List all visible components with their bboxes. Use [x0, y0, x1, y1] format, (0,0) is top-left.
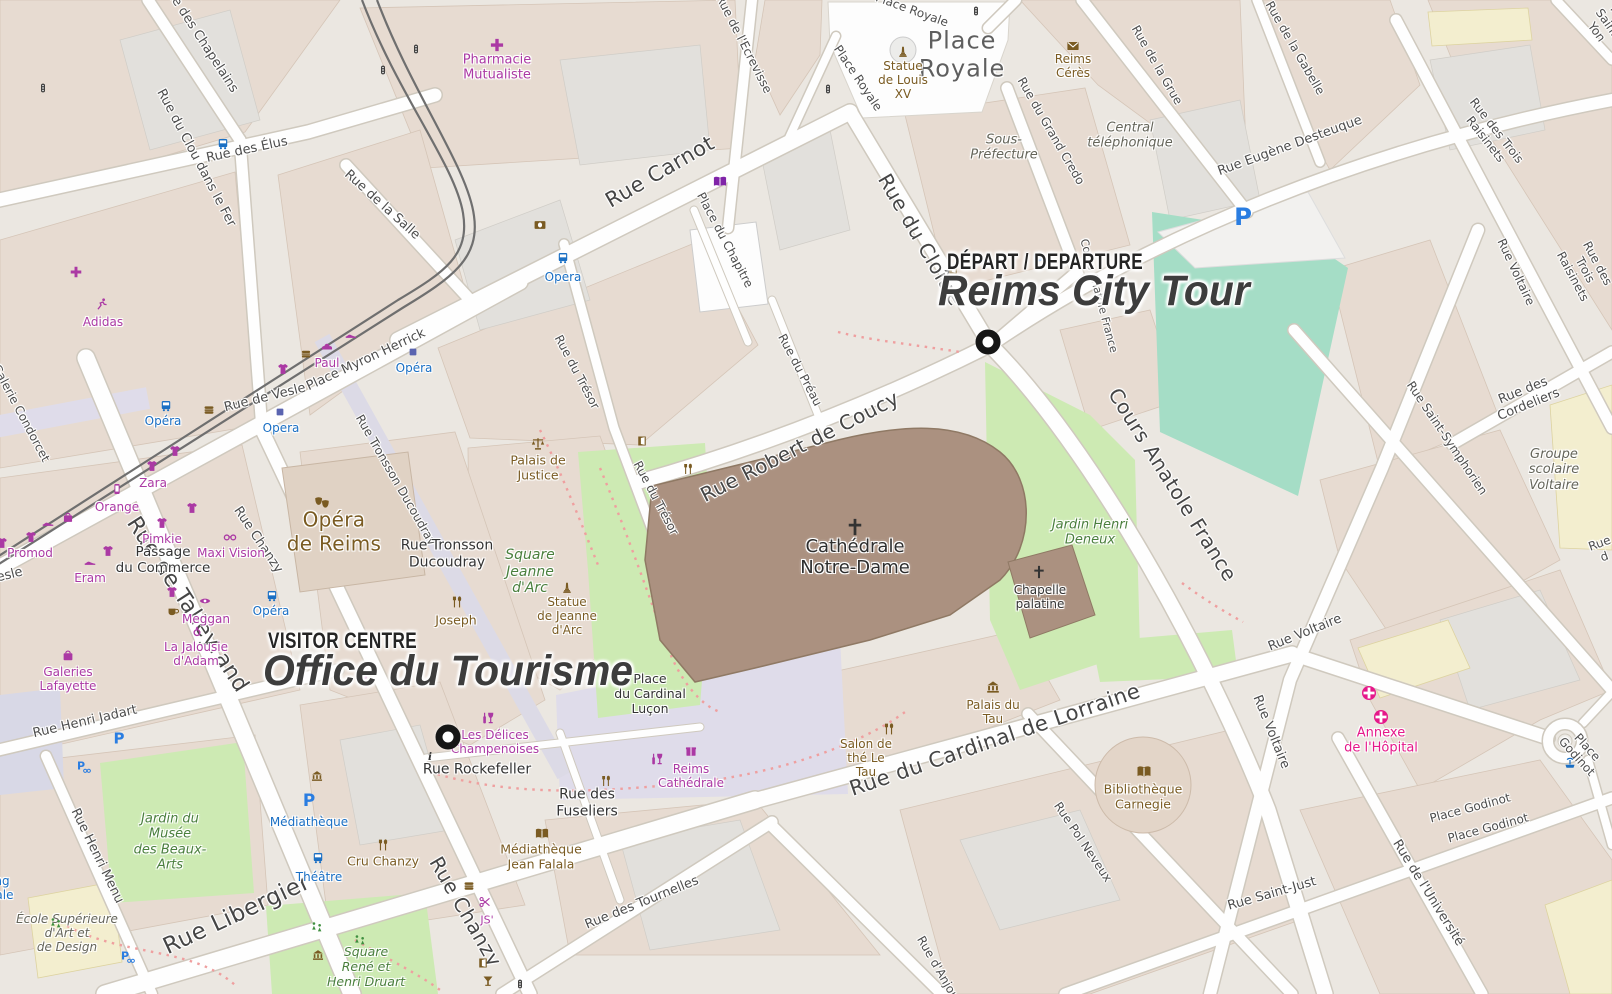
label-eram: Eram: [74, 571, 106, 585]
label-théâtre: Théâtre: [296, 870, 342, 884]
parking-icon: P: [111, 730, 127, 746]
label-annexe-de-lhôpital: Annexe de l'Hôpital: [1344, 726, 1418, 757]
label-rue-chanzy: Rue Chanzy: [424, 853, 506, 972]
book-icon: [1136, 764, 1152, 780]
label-rue-tronsson-ducoudray: Rue Tronsson Ducoudray: [401, 537, 493, 570]
museum-icon: [986, 680, 1001, 695]
label-médiathèque-jean-falala: Médiathèque Jean Falala: [500, 842, 582, 872]
traffic-light-icon: [971, 6, 982, 17]
cutlery-icon: [682, 463, 695, 476]
label-la-jalousie-dadam: La Jalousie d'Adam: [164, 640, 228, 668]
label-statue-de-jeanne-darc: Statue de Jeanne d'Arc: [537, 595, 597, 637]
label-place-du-chapitre: Place du Chapitre: [694, 190, 756, 290]
label-rue-du-grand-credo: Rue du Grand Credo: [1014, 75, 1087, 187]
hospital-cross-icon: [1361, 685, 1377, 701]
label-central-téléphonique: Central téléphonique: [1087, 121, 1173, 152]
label-opera: Opera: [263, 421, 300, 435]
label-place-royale: Place Royale: [831, 43, 885, 114]
svg-text:P: P: [114, 730, 125, 746]
label-rue-saint-yon: Rue Saint-Yon: [1581, 0, 1612, 50]
church-cross-icon: [1032, 565, 1047, 580]
scales-icon: [531, 437, 546, 452]
burger-icon: [300, 348, 312, 360]
phone-icon: [111, 483, 124, 496]
label-rue-de-la-gabelle: Rue de la Gabelle: [1262, 0, 1327, 97]
playground-icon: [310, 920, 324, 934]
cutlery-icon: [376, 838, 390, 852]
label-cru-chanzy: Cru Chanzy: [347, 855, 419, 870]
label-rue-pol-neveux: Rue Pol Neveux: [1051, 799, 1115, 884]
labels-layer: Rue de TalleyrandRue des ChapelainsRue d…: [0, 0, 1612, 994]
label-rue-robert-de-coucy: Rue Robert de Coucy: [697, 387, 903, 508]
label-rue-des-cordeliers: Rue des Cordeliers: [1480, 368, 1571, 429]
info-icon: i: [424, 750, 437, 763]
label-rue-voltaire: Rue Voltaire: [1249, 693, 1292, 771]
shirt-icon: [186, 502, 199, 515]
label-cathédrale-notre-dame: Cathédrale Notre-Dame: [800, 536, 910, 578]
label-jardin-du-musée-des-beaux--arts: Jardin du Musée des Beaux- Arts: [134, 811, 207, 872]
departure-title: Reims City Tour: [938, 267, 1250, 316]
label-rue-eugène-desteuque: Rue Eugène Desteuque: [1216, 113, 1365, 180]
traffic-light-icon: [823, 84, 834, 95]
departure-marker[interactable]: [976, 330, 1001, 355]
monument-icon: [897, 46, 910, 59]
visitor-centre-title: Office du Tourisme: [263, 647, 633, 696]
label-zara: Zara: [139, 476, 167, 490]
shirt-icon: [156, 517, 169, 530]
label-opera: Opera: [545, 270, 582, 284]
label-rue-des-trois-raisinets: Rue des Trois Raisinets: [1554, 236, 1612, 304]
cutlery-icon: [882, 722, 896, 736]
label-galerie-condorcet: Galerie Condorcet: [0, 362, 53, 464]
label-rue-saint-symphorien: Rue Saint-Symphorien: [1404, 379, 1491, 498]
label-js: JS': [480, 915, 493, 928]
label-rue-rockefeller: Rue Rockefeller: [423, 762, 531, 779]
shirt-icon: [25, 531, 38, 544]
label-rue-des-fuseliers: Rue des Fuseliers: [556, 786, 618, 819]
bus-icon: [266, 590, 279, 603]
label-square-jeanne-darc: Square Jeanne d'Arc: [505, 547, 555, 597]
label-pimkie: Pimkie: [142, 532, 182, 546]
label-orange: Orange: [95, 500, 139, 514]
label-rue-de-lecrevisse: Rue de l'Ecrevisse: [713, 0, 775, 96]
svg-text:P: P: [1234, 203, 1252, 229]
visitor-centre-marker[interactable]: [436, 725, 461, 750]
museum-icon: [312, 949, 325, 962]
traffic-light-icon: [411, 44, 422, 55]
label-rue-libergier: Rue Libergier: [159, 869, 315, 961]
label-pharmacie-mutualiste: Pharmacie Mutualiste: [463, 53, 532, 84]
label-rue-des-tournelles: Rue des Tournelles: [583, 873, 701, 933]
door-icon: [636, 435, 648, 447]
coffee-icon: [167, 605, 180, 618]
label-meggan: Meggan: [182, 612, 230, 626]
run-icon: [96, 298, 109, 311]
wine-icon: [650, 752, 664, 766]
parking-icon: P: [300, 791, 318, 809]
label-rue-de-la-salle: Rue de la Salle: [341, 167, 423, 243]
fountain-icon: [1563, 756, 1577, 770]
bus-icon: [557, 252, 570, 265]
burger-icon: [203, 404, 216, 417]
label-chapelle-palatine: Chapelle palatine: [1014, 583, 1066, 611]
shoe-icon: [84, 556, 97, 569]
museum-icon: [311, 770, 324, 783]
label-médiathèque: Médiathèque: [270, 815, 348, 829]
book-icon: [535, 827, 550, 842]
label-rue-voltaire: Rue Voltaire: [1494, 236, 1537, 307]
label-rue-de-vesle: Rue de Vesle: [0, 564, 24, 599]
label-groupe-scolaire-voltaire: Groupe scolaire Voltaire: [1529, 447, 1579, 493]
label-rue-du-trésor: Rue du Trésor: [552, 333, 603, 412]
envelope-icon: [1066, 39, 1080, 53]
book-icon: [713, 175, 728, 190]
bakery-icon: [321, 341, 334, 354]
label-maxi-vision: Maxi Vision: [197, 546, 265, 560]
label-place-godinot: Place Godinot: [1556, 725, 1609, 779]
label-rue-du-préau: Rue du Préau: [775, 331, 825, 408]
shirt-icon: [169, 445, 182, 458]
ring-icon: [191, 625, 204, 638]
label-les-délices-champenoises: Les Délices Champenoises: [451, 728, 539, 756]
label-rue-henri-menu: Rue Henri Menu: [67, 806, 126, 906]
playground-icon: [49, 916, 63, 930]
label-place-royale: Place Royale: [874, 0, 950, 30]
label-rue-d: Rue d: [1586, 533, 1612, 567]
shirt-icon: [277, 363, 290, 376]
label-rue-de-la-grue: Rue de la Grue: [1129, 23, 1186, 107]
wine-icon: [481, 711, 495, 725]
label-statue-de-louis-xv: Statue de Louis XV: [878, 59, 928, 101]
label-opéra: Opéra: [396, 361, 433, 375]
label-rue-des-chapelains: Rue des Chapelains: [159, 0, 241, 96]
label-place-royale: Place Royale: [919, 27, 1006, 84]
label-rue-de-luniversité: Rue de l'Université: [1389, 837, 1467, 949]
hospital-cross-icon: [1373, 709, 1389, 725]
label-rue-des-trois-raisinets: Rue des Trois Raisinets: [1443, 79, 1540, 192]
shoe-icon: [345, 329, 358, 342]
burger-icon: [463, 880, 476, 893]
scissors-icon: [479, 896, 492, 909]
cocktail-icon: [482, 975, 495, 988]
label-palais-de-justice: Palais de Justice: [510, 453, 565, 483]
shirt-icon: [146, 460, 159, 473]
monument-icon: [561, 582, 574, 595]
label-jardin-henri-deneux: Jardin Henri Deneux: [1052, 518, 1128, 549]
label-opéra: Opéra: [145, 414, 182, 428]
playground-icon: [353, 933, 367, 947]
label-square-rené-et-henri-druart: Square René et Henri Druart: [327, 945, 405, 989]
label-paul: Paul: [315, 356, 340, 370]
church-cross-icon: [845, 517, 865, 537]
currency-icon: [533, 218, 547, 232]
label-rue-du-trésor: Rue du Trésor: [631, 459, 682, 538]
bag-icon: [62, 511, 75, 524]
traffic-light-icon: [515, 979, 526, 990]
svg-text:P: P: [303, 791, 315, 809]
label-promod: Promod: [7, 546, 53, 560]
tram-square-icon: [409, 348, 418, 357]
map-canvas[interactable]: Rue de TalleyrandRue des ChapelainsRue d…: [0, 0, 1612, 994]
bus-icon: [217, 138, 230, 151]
label-palais-du-tau: Palais du Tau: [966, 698, 1019, 726]
traffic-light-icon: [378, 65, 389, 76]
cutlery-icon: [450, 595, 464, 609]
label-cours-anatole-france: Cours Anatole France: [1103, 384, 1241, 586]
label-rue-saint-just: Rue Saint-Just: [1226, 874, 1318, 914]
shirt-icon: [0, 537, 9, 550]
pharmacy-cross-icon: [70, 266, 83, 279]
label-adidas: Adidas: [83, 315, 123, 329]
label-galeries-lafayette: Galeries Lafayette: [40, 665, 97, 693]
parking-bike-icon: P: [119, 948, 135, 964]
parking-icon: P: [1230, 203, 1256, 229]
label-reims-cérès: Reims Cérès: [1055, 52, 1091, 80]
svg-text:i: i: [428, 751, 432, 762]
pharmacy-cross-icon: [490, 38, 505, 53]
shirt-icon: [102, 545, 115, 558]
label-reims-cathédrale: Reims Cathédrale: [658, 762, 724, 790]
label-salon-de-thé-le-tau: Salon de thé Le Tau: [840, 737, 892, 779]
label-opéra-de-reims: Opéra de Reims: [287, 508, 382, 555]
label-ng-rale: ng rale: [0, 874, 14, 902]
eye-icon: [199, 595, 212, 608]
label-sous--préfecture: Sous- Préfecture: [970, 133, 1038, 164]
label-bibliothèque-carnegie: Bibliothèque Carnegie: [1104, 782, 1183, 812]
label-rue-voltaire: Rue Voltaire: [1266, 611, 1344, 654]
masks-icon: [313, 493, 331, 511]
parking-bike-icon: P: [75, 758, 91, 774]
label-école-supérieure-dart-et-de-design: École Supérieure d'Art et de Design: [16, 912, 118, 954]
label-rue-de-vesle: Rue de Vesle: [223, 380, 308, 415]
cutlery-icon: [600, 775, 613, 788]
label-opéra: Opéra: [253, 604, 290, 618]
bus-icon: [312, 852, 325, 865]
shirt-icon: [166, 586, 179, 599]
tram-square-icon: [276, 408, 285, 417]
gift-icon: [685, 745, 698, 758]
door-icon: [477, 957, 489, 969]
bag-icon: [61, 648, 75, 662]
label-rue-chanzy: Rue Chanzy: [230, 504, 286, 576]
label-rue-danjou: Rue d'Anjou: [914, 933, 962, 994]
glasses-icon: [223, 530, 237, 544]
shoe-icon: [42, 517, 55, 530]
traffic-light-icon: [38, 83, 49, 94]
label-joseph: Joseph: [435, 614, 476, 629]
bus-icon: [160, 400, 173, 413]
